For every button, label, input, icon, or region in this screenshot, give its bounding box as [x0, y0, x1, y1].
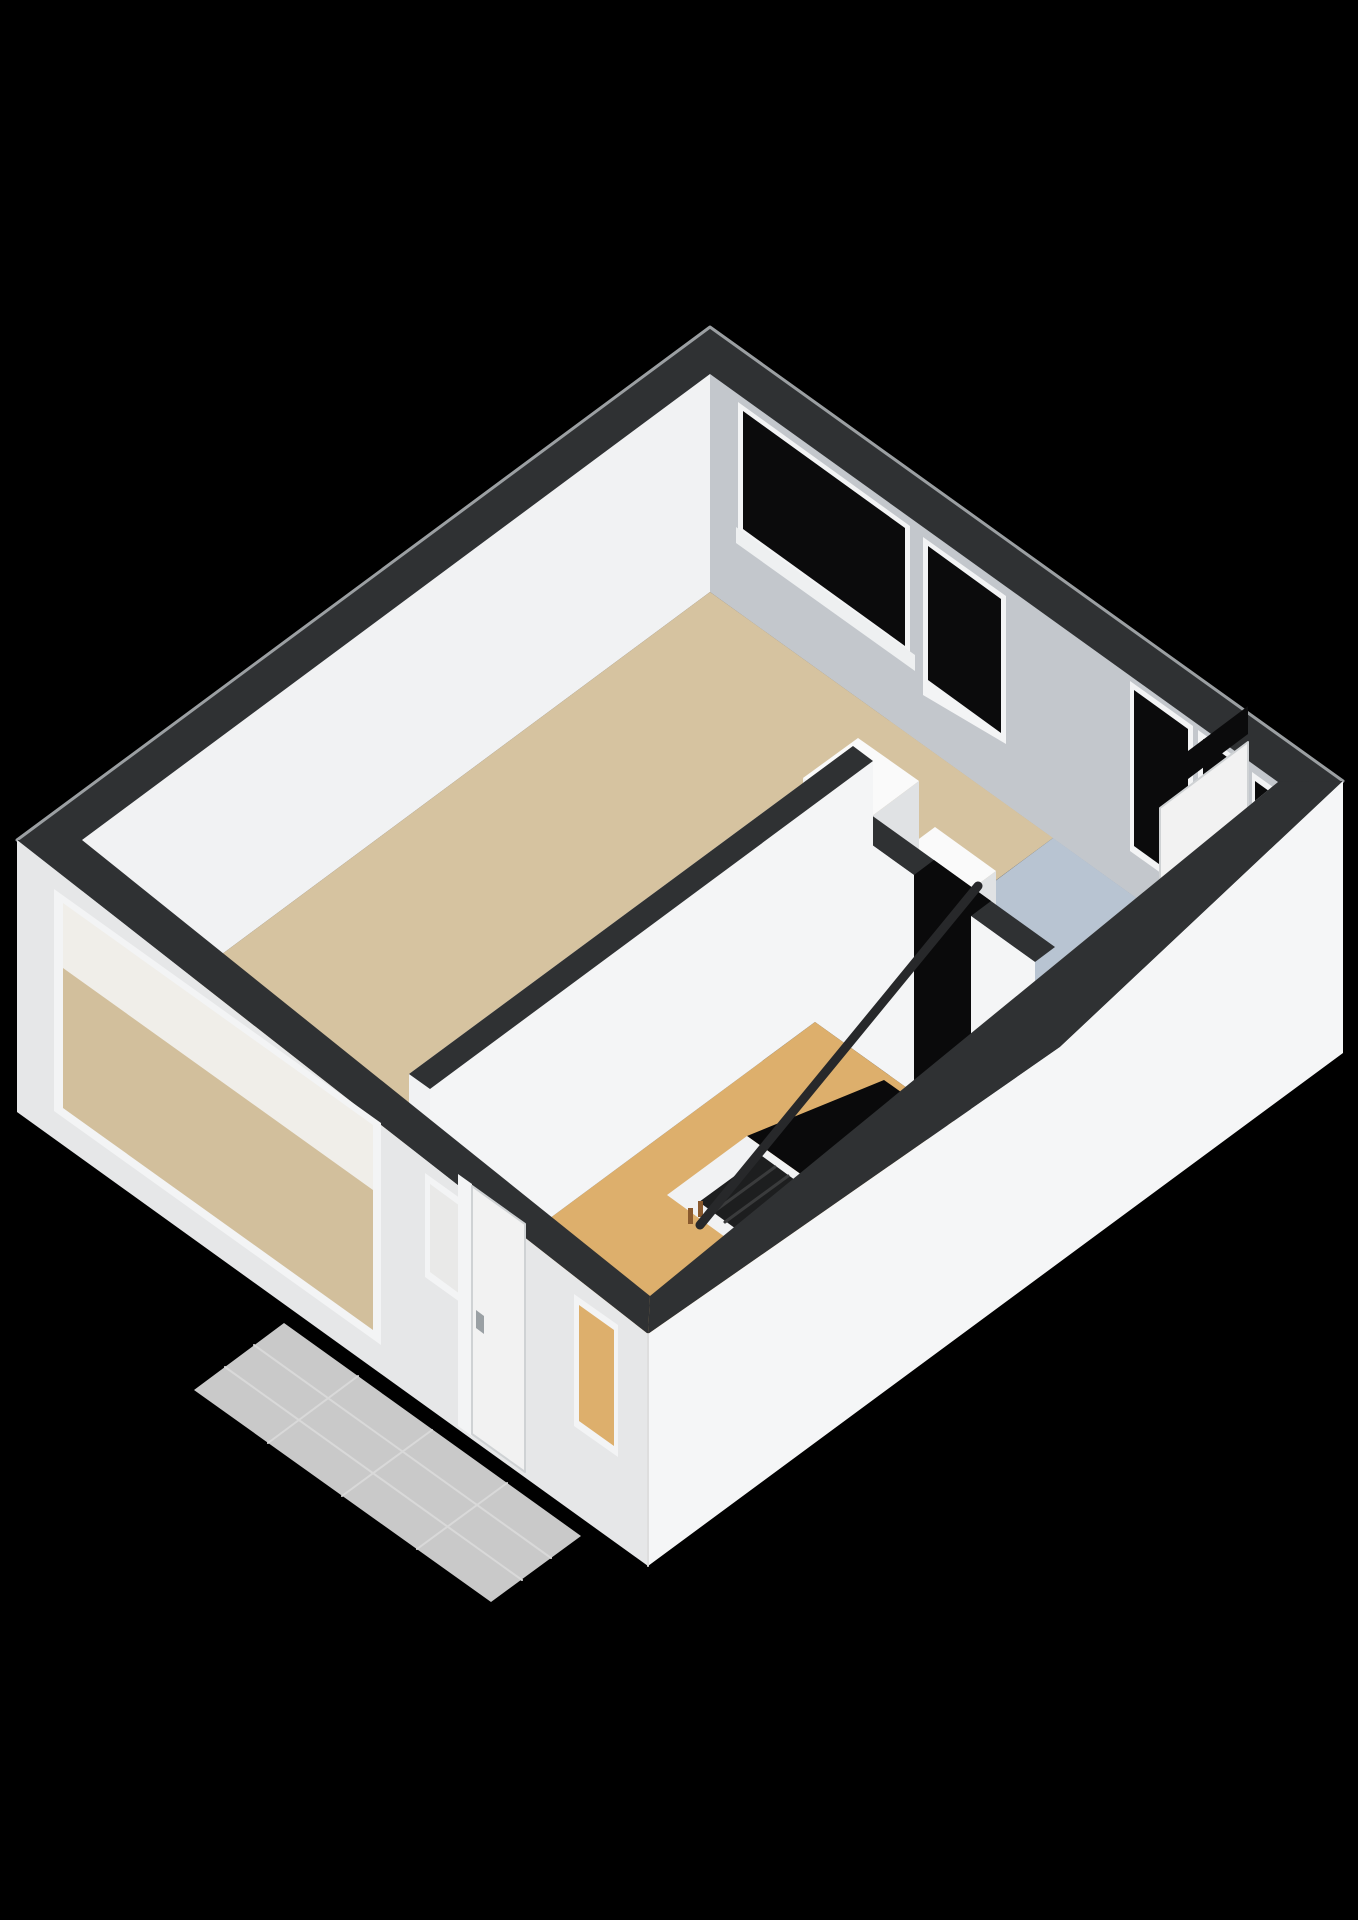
- stair-baluster-2: [698, 1201, 703, 1217]
- floorplan-3d-view: [0, 0, 1358, 1920]
- front-door-trim: [458, 1174, 472, 1436]
- floorplan-svg: [0, 0, 1358, 1920]
- stair-baluster-1: [688, 1208, 693, 1224]
